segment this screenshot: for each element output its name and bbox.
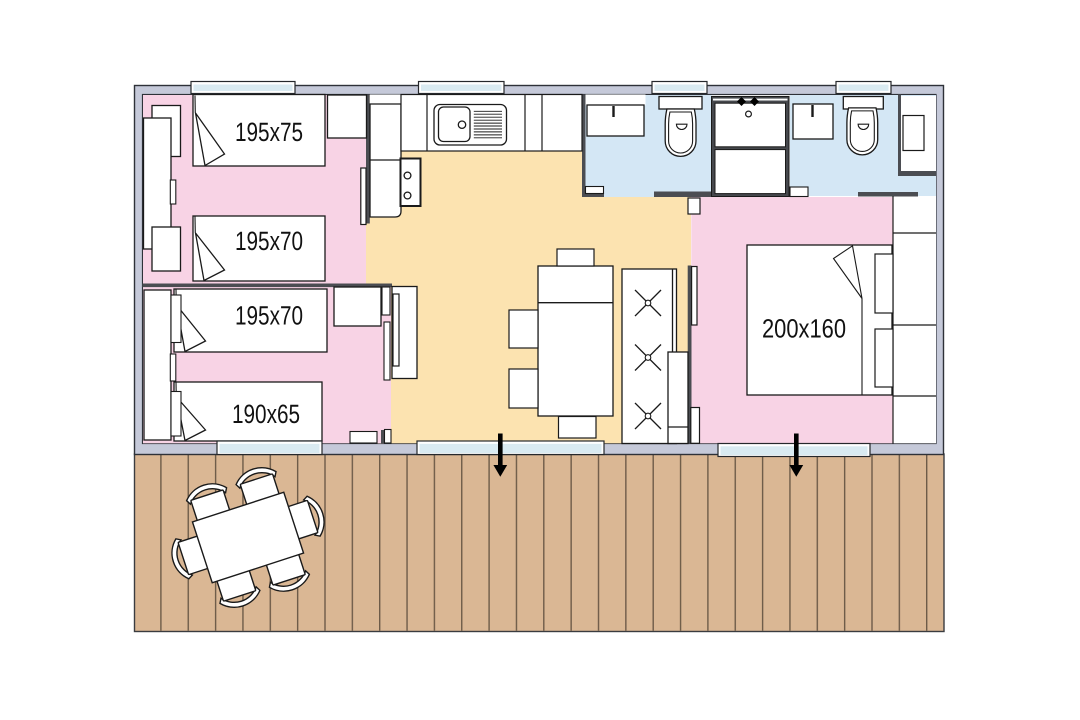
svg-text:195x70: 195x70 (235, 226, 303, 256)
svg-text:195x75: 195x75 (235, 117, 303, 147)
svg-text:190x65: 190x65 (232, 399, 300, 429)
svg-text:195x70: 195x70 (235, 301, 303, 331)
svg-text:200x160: 200x160 (762, 314, 846, 344)
